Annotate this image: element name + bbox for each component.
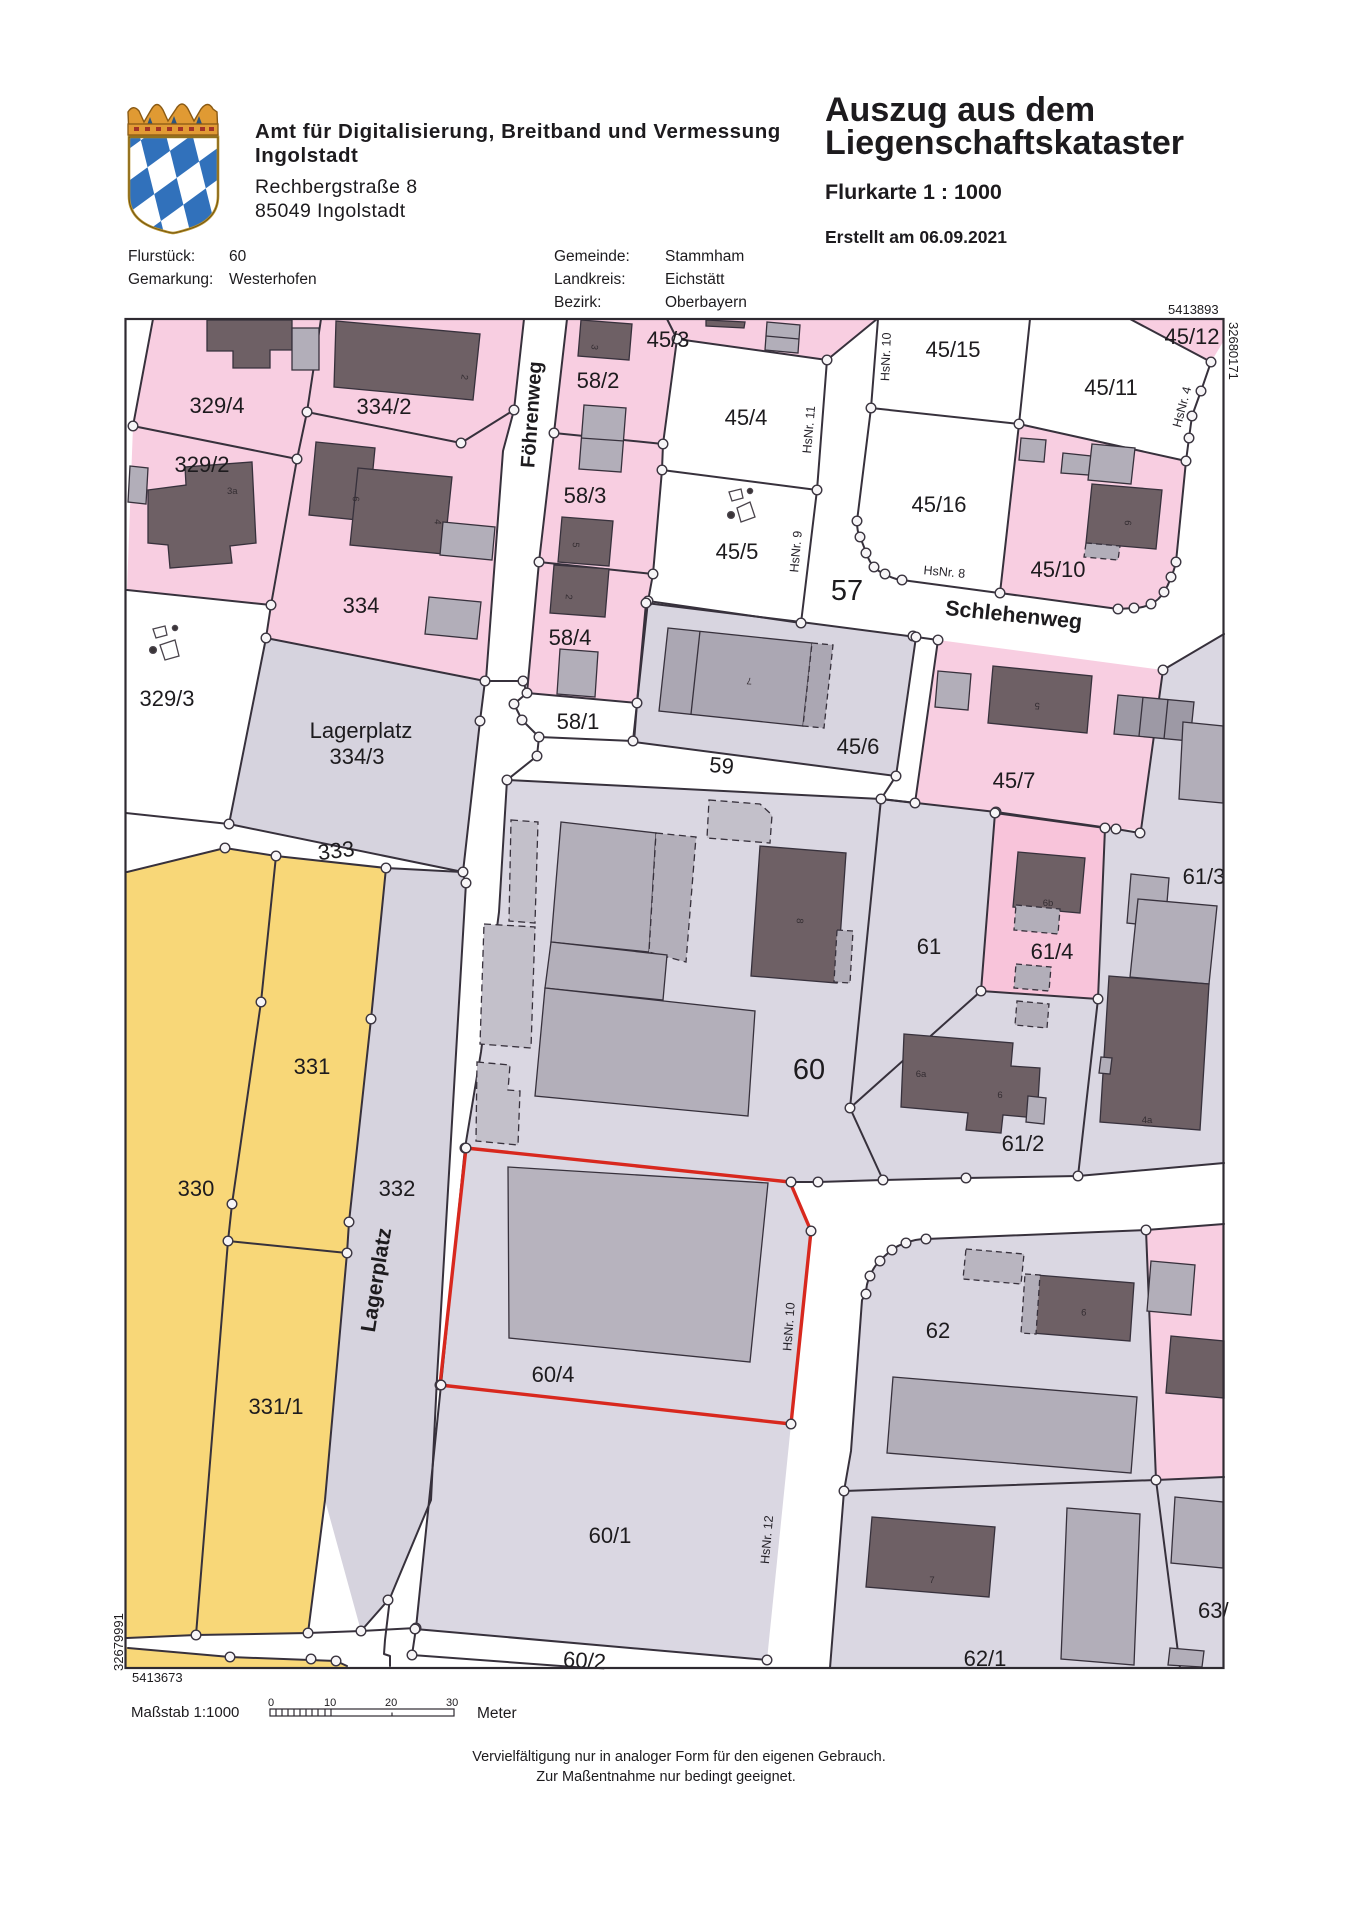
- svg-text:Stammham: Stammham: [665, 248, 744, 265]
- svg-text:58/4: 58/4: [549, 625, 592, 650]
- svg-text:Gemarkung:: Gemarkung:: [128, 271, 213, 288]
- svg-text:Zur Maßentnahme nur bedingt ge: Zur Maßentnahme nur bedingt geeignet.: [536, 1769, 796, 1785]
- svg-text:5413673: 5413673: [132, 1670, 183, 1685]
- svg-text:HsNr. 10: HsNr. 10: [878, 332, 894, 381]
- svg-text:0: 0: [268, 1697, 274, 1709]
- svg-text:Erstellt am 06.09.2021: Erstellt am 06.09.2021: [825, 227, 1007, 247]
- svg-text:6: 6: [1122, 520, 1133, 526]
- svg-text:60/1: 60/1: [589, 1523, 632, 1548]
- svg-text:45/4: 45/4: [725, 405, 768, 430]
- svg-text:329/4: 329/4: [189, 393, 244, 418]
- svg-text:45/3: 45/3: [647, 327, 690, 352]
- svg-text:6b: 6b: [1043, 898, 1054, 909]
- svg-text:330: 330: [178, 1176, 215, 1201]
- svg-text:332: 332: [379, 1176, 416, 1201]
- svg-text:4a: 4a: [1142, 1115, 1153, 1126]
- svg-text:Amt für Digitalisierung, Breit: Amt für Digitalisierung, Breitband und V…: [255, 120, 781, 143]
- svg-text:333: 333: [316, 836, 355, 865]
- svg-text:45/6: 45/6: [837, 734, 880, 759]
- svg-text:4: 4: [432, 519, 443, 525]
- svg-text:Gemeinde:: Gemeinde:: [554, 248, 630, 265]
- svg-text:5413893: 5413893: [1168, 302, 1219, 317]
- svg-text:Flurstück:: Flurstück:: [128, 248, 195, 265]
- svg-text:63/: 63/: [1198, 1598, 1229, 1623]
- svg-text:331/1: 331/1: [248, 1394, 303, 1419]
- svg-text:334/3: 334/3: [329, 744, 384, 769]
- svg-text:3a: 3a: [227, 486, 238, 497]
- svg-text:331: 331: [294, 1054, 331, 1079]
- svg-text:61/4: 61/4: [1031, 939, 1074, 964]
- svg-text:60/2: 60/2: [562, 1647, 606, 1675]
- svg-text:Flurkarte 1 : 1000: Flurkarte 1 : 1000: [825, 180, 1002, 204]
- svg-text:6: 6: [997, 1090, 1002, 1101]
- svg-text:7: 7: [746, 675, 752, 686]
- svg-text:45/15: 45/15: [925, 337, 980, 362]
- svg-text:Landkreis:: Landkreis:: [554, 271, 626, 288]
- svg-text:7: 7: [929, 1575, 934, 1586]
- svg-text:Vervielfältigung nur in analog: Vervielfältigung nur in analoger Form fü…: [472, 1749, 886, 1765]
- svg-text:57: 57: [831, 575, 863, 607]
- svg-text:85049 Ingolstadt: 85049 Ingolstadt: [255, 200, 406, 222]
- svg-text:Maßstab 1:1000: Maßstab 1:1000: [131, 1704, 239, 1721]
- svg-text:20: 20: [385, 1697, 397, 1709]
- svg-text:Meter: Meter: [477, 1705, 517, 1722]
- svg-text:45/7: 45/7: [993, 768, 1036, 793]
- svg-text:58/3: 58/3: [564, 483, 607, 508]
- svg-text:Bezirk:: Bezirk:: [554, 294, 601, 311]
- svg-text:32679991: 32679991: [111, 1613, 126, 1671]
- svg-text:45/11: 45/11: [1084, 375, 1137, 400]
- svg-text:329/2: 329/2: [174, 452, 229, 477]
- svg-text:45/5: 45/5: [716, 539, 759, 564]
- svg-text:60/4: 60/4: [532, 1362, 575, 1387]
- svg-text:59: 59: [708, 752, 735, 779]
- svg-text:45/16: 45/16: [911, 492, 966, 517]
- svg-text:8: 8: [794, 918, 805, 924]
- svg-text:32680171: 32680171: [1226, 322, 1241, 380]
- svg-text:30: 30: [446, 1697, 458, 1709]
- svg-text:10: 10: [324, 1697, 336, 1709]
- svg-text:Eichstätt: Eichstätt: [665, 271, 725, 288]
- svg-text:Oberbayern: Oberbayern: [665, 294, 747, 311]
- svg-text:60: 60: [229, 248, 247, 265]
- svg-text:61: 61: [917, 934, 941, 959]
- svg-text:5: 5: [1034, 700, 1040, 711]
- svg-text:61/3: 61/3: [1183, 864, 1226, 889]
- svg-text:60: 60: [793, 1054, 825, 1086]
- svg-text:Rechbergstraße 8: Rechbergstraße 8: [255, 176, 417, 198]
- svg-text:45/12: 45/12: [1164, 324, 1219, 349]
- svg-text:329/3: 329/3: [139, 686, 194, 711]
- svg-text:2: 2: [563, 594, 574, 600]
- svg-text:334: 334: [343, 593, 380, 618]
- svg-text:61/2: 61/2: [1002, 1131, 1045, 1156]
- svg-text:9: 9: [1081, 1306, 1087, 1317]
- svg-text:58/1: 58/1: [557, 709, 600, 734]
- svg-text:6: 6: [350, 496, 361, 502]
- svg-text:6a: 6a: [916, 1069, 927, 1080]
- svg-text:58/2: 58/2: [577, 368, 620, 393]
- svg-text:Westerhofen: Westerhofen: [229, 271, 317, 288]
- svg-text:Liegenschaftskataster: Liegenschaftskataster: [825, 124, 1184, 162]
- svg-text:45/10: 45/10: [1030, 557, 1085, 582]
- svg-text:Ingolstadt: Ingolstadt: [255, 144, 358, 167]
- svg-text:5: 5: [570, 542, 581, 548]
- svg-text:Lagerplatz: Lagerplatz: [310, 718, 413, 743]
- svg-text:62: 62: [926, 1318, 950, 1343]
- svg-text:334/2: 334/2: [356, 394, 411, 419]
